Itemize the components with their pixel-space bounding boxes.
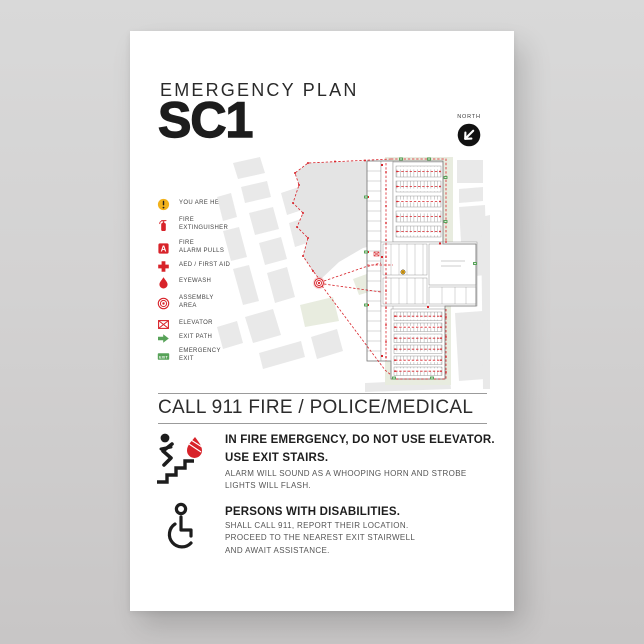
legend-label: EYEWASH [179, 278, 211, 286]
emergency-exit-sign-icon: EXIT [157, 350, 170, 363]
fire-emergency-body: ALARM WILL SOUND AS A WHOOPING HORN AND … [225, 468, 467, 493]
legend-item-assembly-area: ASSEMBLY AREA [157, 293, 214, 313]
legend-item-exit-path: EXIT PATH [157, 328, 212, 348]
pwd-body: SHALL CALL 911, REPORT THEIR LOCATION. P… [225, 520, 415, 557]
legend-item-emergency-exit: EXIT EMERGENCY EXIT [157, 346, 221, 366]
legend-item-eyewash: EYEWASH [157, 272, 211, 292]
divider-bottom [158, 423, 487, 424]
you-are-here-icon [157, 198, 170, 211]
assembly-area-marker [313, 277, 325, 289]
eyewash-drop-icon [157, 276, 170, 289]
fire-emergency-heading: IN FIRE EMERGENCY, DO NOT USE ELEVATOR. … [225, 432, 495, 468]
plan-code: SC1 [158, 95, 252, 145]
legend-label: ELEVATOR [179, 320, 213, 328]
north-label: NORTH [450, 114, 488, 120]
map-elevator-marker [374, 252, 379, 256]
accessibility-icon [162, 502, 202, 556]
first-aid-cross-icon [157, 260, 170, 273]
assembly-area-icon [157, 297, 170, 310]
legend-label: EXIT PATH [179, 334, 212, 342]
you-are-here-marker [401, 270, 405, 274]
svg-text:A: A [161, 244, 167, 253]
north-arrow-icon [457, 123, 481, 147]
emergency-plan-poster: EMERGENCY PLAN SC1 NORTH YOU ARE HERE FI… [130, 31, 514, 611]
floor-plan-map [215, 157, 490, 392]
exit-path-arrow-icon [157, 332, 170, 345]
north-indicator: NORTH [450, 114, 488, 152]
svg-text:EXIT: EXIT [159, 355, 168, 359]
fire-exit-stairs-icon [150, 431, 208, 485]
legend-label: ASSEMBLY AREA [179, 295, 214, 311]
divider-top [158, 393, 487, 394]
fire-extinguisher-icon [157, 219, 170, 232]
fire-alarm-icon: A [157, 242, 170, 255]
call-911-banner: CALL 911 FIRE / POLICE/MEDICAL [158, 397, 473, 419]
